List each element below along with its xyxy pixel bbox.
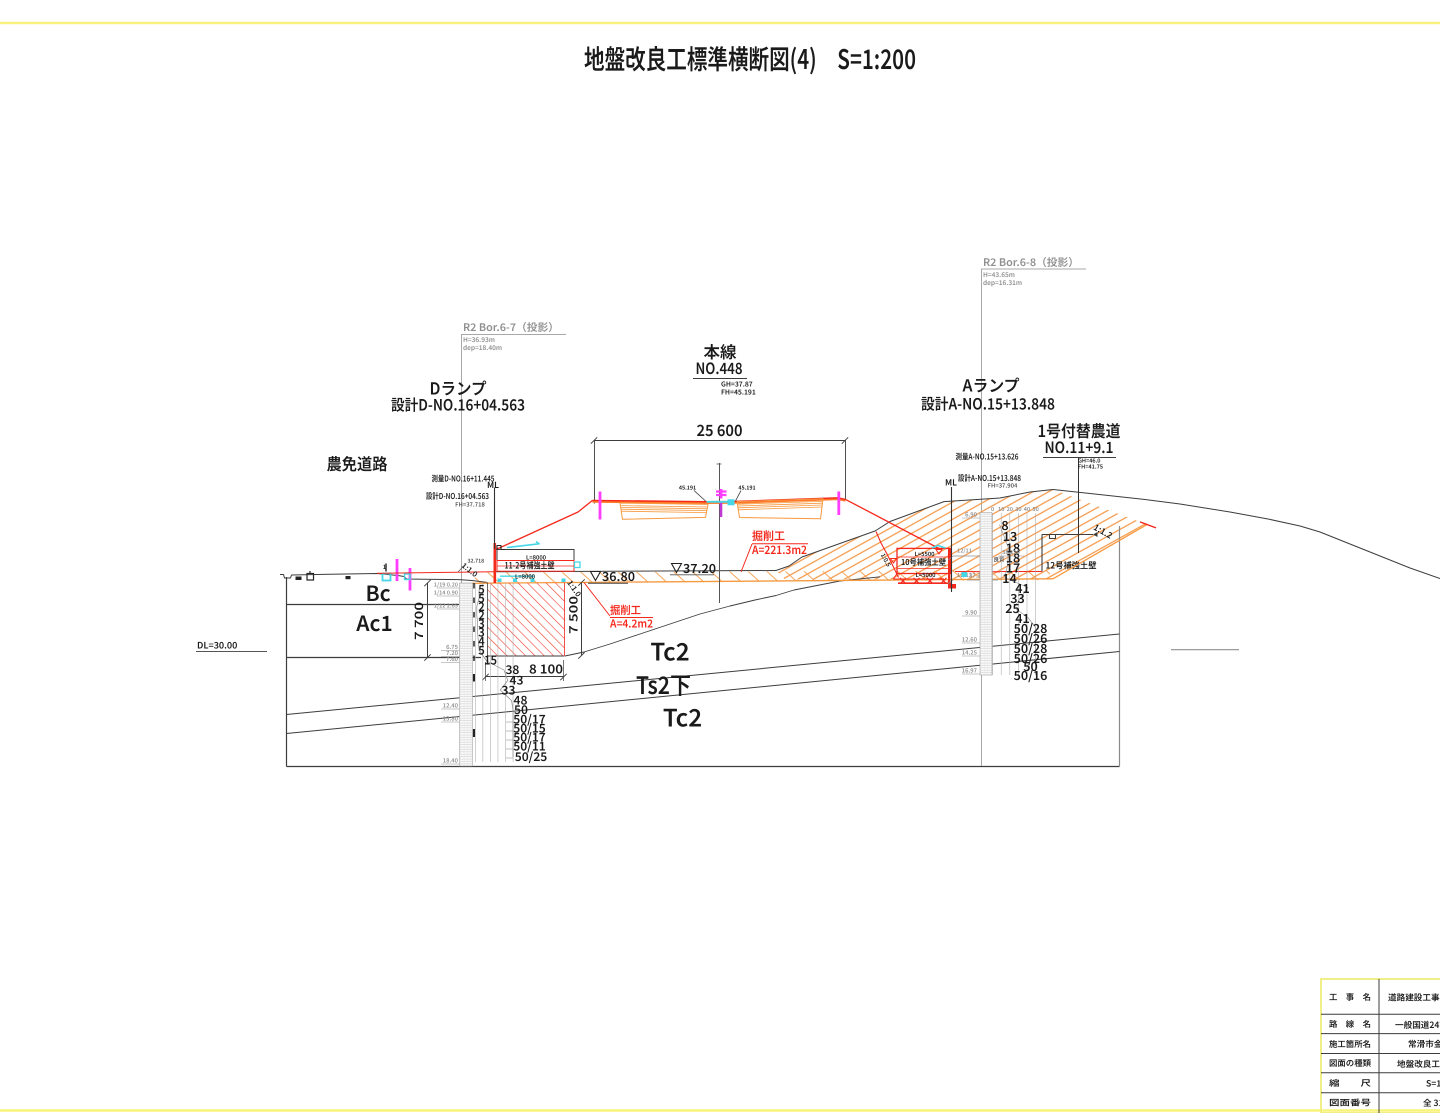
svg-text:ML: ML xyxy=(945,477,957,489)
svg-text:0: 0 xyxy=(991,505,994,513)
svg-text:12.40: 12.40 xyxy=(443,701,459,710)
svg-text:1: 1 xyxy=(383,562,387,571)
svg-text:R2 Bor.6-7（投影）: R2 Bor.6-7（投影） xyxy=(463,320,559,335)
svg-text:12/11: 12/11 xyxy=(957,547,972,555)
svg-text:図面の種類: 図面の種類 xyxy=(1329,1057,1372,1069)
svg-text:L=5000: L=5000 xyxy=(915,570,936,579)
svg-text:20: 20 xyxy=(1007,505,1013,513)
svg-text:7 500: 7 500 xyxy=(566,596,582,634)
svg-text:1/19 0.20: 1/19 0.20 xyxy=(434,581,458,589)
svg-text:常滑市金: 常滑市金 xyxy=(1408,1038,1440,1050)
svg-text:50/25: 50/25 xyxy=(515,748,548,765)
svg-text:15: 15 xyxy=(484,650,497,669)
svg-text:工 事 名: 工 事 名 xyxy=(1329,991,1371,1003)
svg-text:L=8000: L=8000 xyxy=(515,572,536,581)
svg-text:37.20: 37.20 xyxy=(683,558,716,577)
svg-text:施工箇所名: 施工箇所名 xyxy=(1329,1038,1371,1050)
svg-text:測量A-NO.15+13.626: 測量A-NO.15+13.626 xyxy=(956,451,1019,463)
svg-text:地盤改良工標: 地盤改良工標 xyxy=(1397,1058,1440,1070)
svg-text:良質: 良質 xyxy=(993,556,1005,564)
svg-text:1/12 2.65: 1/12 2.65 xyxy=(434,602,458,610)
svg-text:50: 50 xyxy=(1032,505,1038,513)
svg-text:8 100: 8 100 xyxy=(529,659,563,678)
svg-text:NO.11+9.1: NO.11+9.1 xyxy=(1045,436,1114,458)
svg-text:36.80: 36.80 xyxy=(602,566,635,585)
svg-text:7.60: 7.60 xyxy=(446,654,459,663)
svg-text:40: 40 xyxy=(1024,505,1030,513)
svg-text:14.25: 14.25 xyxy=(962,648,978,657)
svg-text:Ac1: Ac1 xyxy=(355,608,392,638)
svg-text:DL=30.00: DL=30.00 xyxy=(197,639,237,652)
svg-text:A=4.2m2: A=4.2m2 xyxy=(609,616,653,632)
svg-text:9.90: 9.90 xyxy=(965,608,978,617)
svg-text:道路建設工事（土: 道路建設工事（土 xyxy=(1388,992,1440,1004)
svg-text:A=221.3m2: A=221.3m2 xyxy=(751,542,807,558)
svg-text:10号補強土壁: 10号補強土壁 xyxy=(901,556,946,568)
svg-text:dep=16.31m: dep=16.31m xyxy=(983,277,1022,287)
svg-text:45.191: 45.191 xyxy=(738,484,755,492)
svg-text:18.40: 18.40 xyxy=(443,756,459,765)
svg-text:設計D-NO.16+04.563: 設計D-NO.16+04.563 xyxy=(391,394,525,416)
svg-text:11-2号補強土壁: 11-2号補強土壁 xyxy=(505,559,555,572)
svg-text:38.110: 38.110 xyxy=(1002,548,1020,556)
svg-text:12.60: 12.60 xyxy=(962,635,978,644)
svg-text:16.97: 16.97 xyxy=(962,666,978,675)
svg-text:図面番号: 図面番号 xyxy=(1329,1097,1371,1109)
svg-text:Tc2: Tc2 xyxy=(650,633,689,668)
svg-text:6.90: 6.90 xyxy=(965,510,978,519)
svg-text:S=1:200: S=1:200 xyxy=(1426,1078,1440,1090)
svg-text:45.191: 45.191 xyxy=(679,484,696,492)
svg-text:R2 Bor.6-8（投影）: R2 Bor.6-8（投影） xyxy=(983,255,1079,270)
svg-text:農免道路: 農免道路 xyxy=(327,451,388,475)
svg-text:13.80: 13.80 xyxy=(443,714,459,723)
svg-text:FH=37.718: FH=37.718 xyxy=(455,500,485,509)
svg-text:測量D-NO.16+11.445: 測量D-NO.16+11.445 xyxy=(432,473,495,485)
svg-text:一般国道247号: 一般国道247号 xyxy=(1395,1019,1440,1031)
svg-text:50/16: 50/16 xyxy=(1014,665,1048,684)
svg-text:Bc: Bc xyxy=(365,578,390,608)
svg-text:10: 10 xyxy=(998,505,1004,513)
svg-text:NO.448: NO.448 xyxy=(696,357,743,379)
svg-text:1/14 0.90: 1/14 0.90 xyxy=(434,589,458,597)
svg-text:32.718: 32.718 xyxy=(468,558,485,565)
svg-text:縮 尺: 縮 尺 xyxy=(1329,1077,1372,1089)
svg-text:全 31: 全 31 xyxy=(1423,1097,1440,1109)
svg-text:設計A-NO.15+13.848: 設計A-NO.15+13.848 xyxy=(921,393,1055,415)
svg-text:30: 30 xyxy=(1015,505,1021,513)
svg-text:dep=18.40m: dep=18.40m xyxy=(463,342,502,352)
svg-text:Ts2下: Ts2下 xyxy=(636,666,691,701)
svg-text:FH=45.191: FH=45.191 xyxy=(721,387,756,397)
svg-text:地盤改良工標準横断図(4) S=1:200: 地盤改良工標準横断図(4) S=1:200 xyxy=(584,38,916,77)
svg-text:25 600: 25 600 xyxy=(697,419,743,441)
svg-text:FH=37.904: FH=37.904 xyxy=(988,481,1018,490)
svg-text:FH=41.75: FH=41.75 xyxy=(1078,463,1103,471)
svg-text:Tc2: Tc2 xyxy=(663,699,702,734)
svg-text:7 700: 7 700 xyxy=(411,602,427,640)
svg-text:路 線 名: 路 線 名 xyxy=(1329,1018,1371,1030)
svg-text:12号補強土壁: 12号補強土壁 xyxy=(1046,558,1097,571)
